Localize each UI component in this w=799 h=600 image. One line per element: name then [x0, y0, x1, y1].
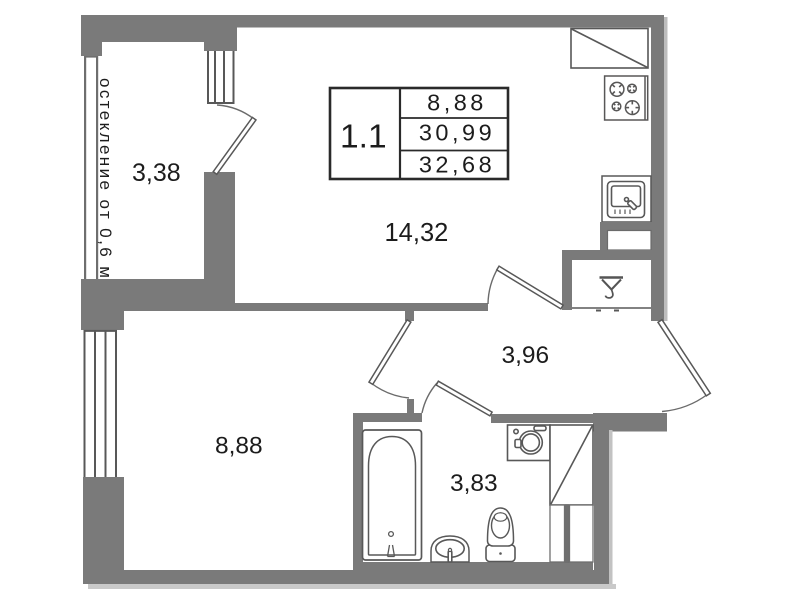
svg-text:8,88: 8,88: [215, 433, 263, 460]
svg-text:остекление от 0,6 м: остекление от 0,6 м: [96, 78, 115, 280]
svg-text:1.1: 1.1: [340, 119, 387, 156]
svg-text:32,68: 32,68: [419, 152, 495, 178]
svg-text:14,32: 14,32: [385, 219, 449, 247]
svg-text:3,96: 3,96: [502, 342, 550, 369]
svg-text:30,99: 30,99: [419, 120, 495, 146]
svg-text:3,38: 3,38: [132, 159, 181, 187]
svg-text:8,88: 8,88: [427, 90, 487, 116]
svg-text:3,83: 3,83: [450, 470, 498, 497]
